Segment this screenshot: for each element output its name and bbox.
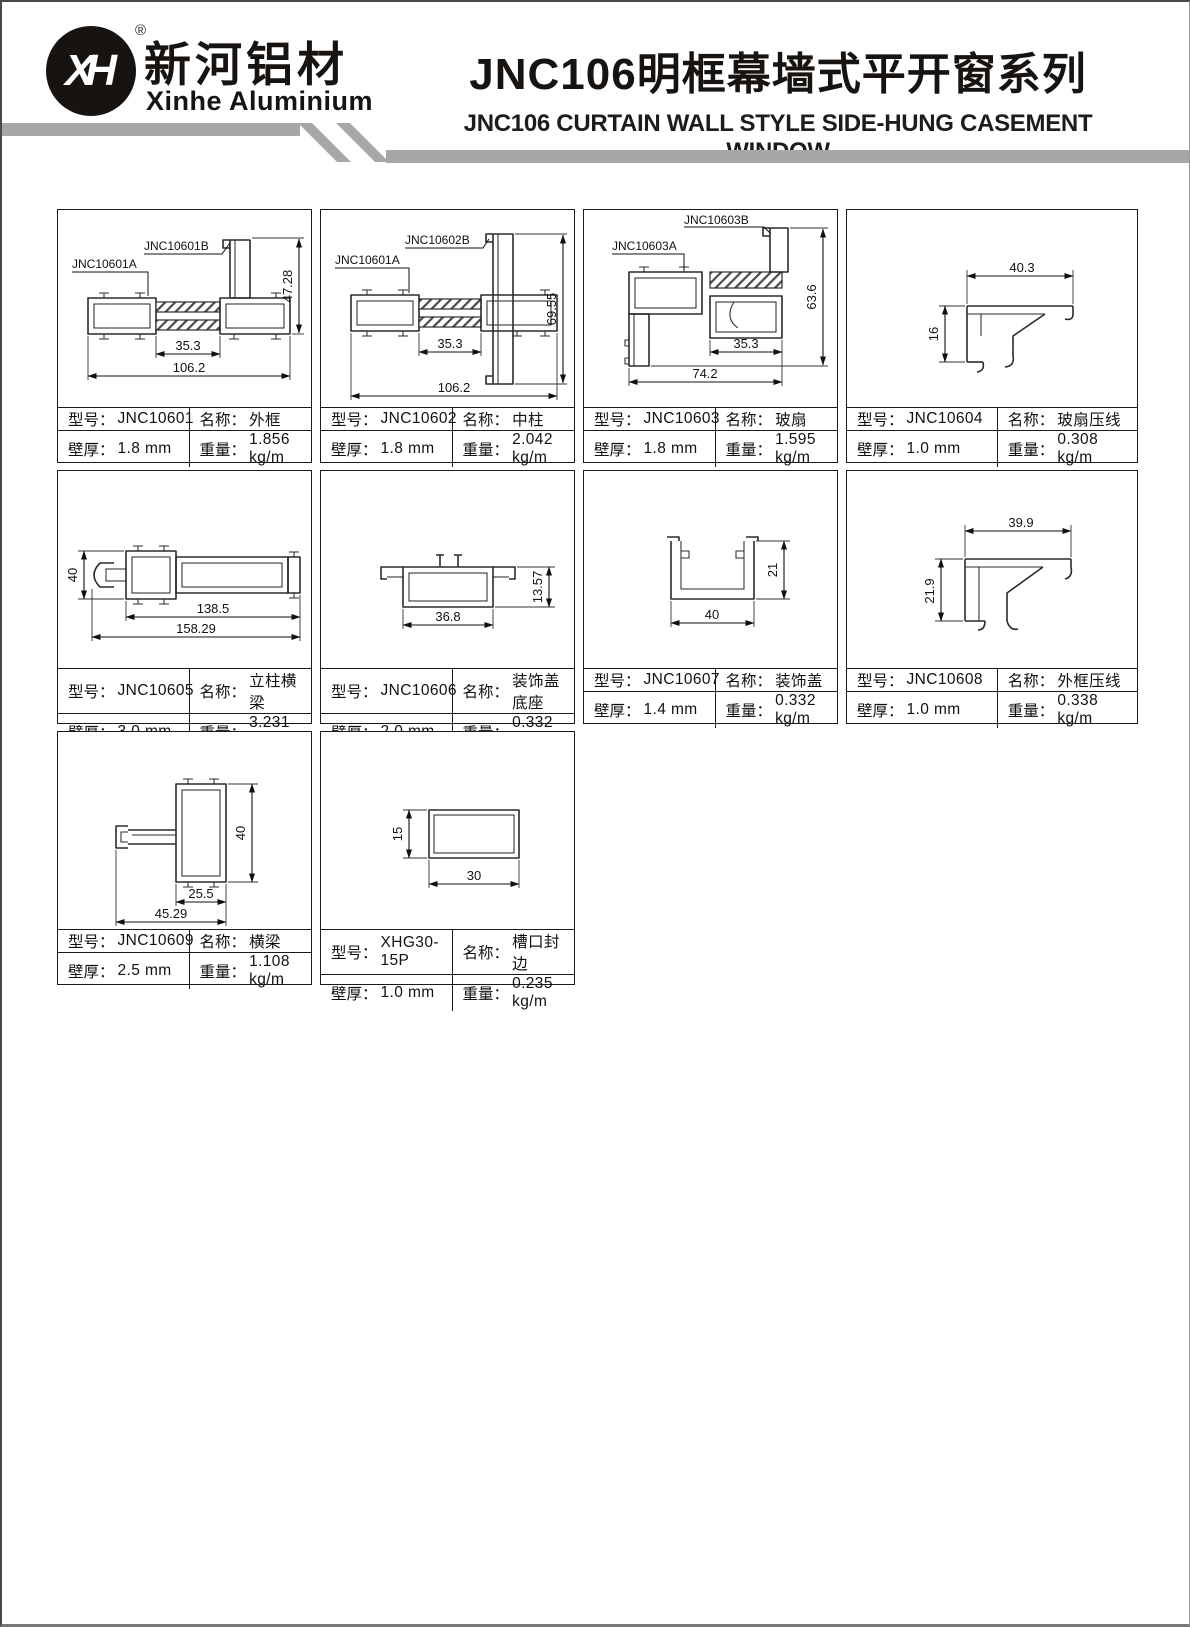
model-label: 型号：	[594, 669, 641, 691]
name-value: 装饰盖	[772, 669, 823, 691]
weight-label: 重量：	[463, 982, 510, 1004]
name-value: 装饰盖底座	[509, 669, 574, 713]
profile-card-jnc10605: 40 138.5 158.29 型号：JNC10605 名称：立柱横梁 壁厚：3…	[57, 470, 312, 724]
model-value: JNC10603	[641, 410, 720, 428]
dim-width: 36.8	[435, 609, 460, 624]
thickness-label: 壁厚：	[68, 438, 115, 460]
weight-label: 重量：	[1008, 438, 1055, 460]
spec-table: 型号：XHG30-15P 名称：槽口封边 壁厚：1.0 mm 重量：0.235 …	[321, 929, 574, 1011]
dim-width: 39.9	[1008, 515, 1033, 530]
thickness-label: 壁厚：	[594, 438, 641, 460]
thickness-label: 壁厚：	[331, 438, 378, 460]
weight-label: 重量：	[726, 438, 773, 460]
thickness-label: 壁厚：	[857, 699, 904, 721]
model-label: 型号：	[331, 941, 378, 963]
dim-height: 16	[926, 327, 941, 341]
name-label: 名称：	[200, 680, 247, 702]
weight-value: 0.338 kg/m	[1054, 692, 1137, 728]
thickness-value: 1.8 mm	[641, 440, 698, 458]
cad-section-jnc10605: 40 138.5 158.29	[58, 471, 310, 668]
profile-grid: 47.28 35.3 106.2 JNC10601A JNC10601B 型号：…	[57, 209, 1138, 985]
dim-overall: 45.29	[155, 906, 188, 921]
cad-section-jnc10603: 63.6 35.3 74.2 JNC10603A JNC10603B	[584, 210, 836, 407]
thickness-value: 1.0 mm	[904, 440, 961, 458]
cad-section-jnc10606: 36.8 13.57	[321, 471, 573, 668]
model-label: 型号：	[857, 669, 904, 691]
thickness-label: 壁厚：	[68, 960, 115, 982]
thickness-value: 1.8 mm	[378, 440, 435, 458]
company-name-cn: 新河铝材	[144, 26, 348, 95]
weight-value: 1.856 kg/m	[246, 431, 311, 467]
profile-drawing: 40 25.5 45.29	[58, 732, 311, 929]
header-titles: JNC106明框幕墙式平开窗系列 JNC106 CURTAIN WALL STY…	[422, 2, 1134, 166]
name-value: 外框压线	[1054, 669, 1121, 691]
profile-card-jnc10606: 36.8 13.57 型号：JNC10606 名称：装饰盖底座 壁厚：2.0 m…	[320, 470, 575, 724]
dim-overall: 158.29	[176, 621, 216, 636]
model-value: JNC10609	[115, 932, 194, 950]
name-label: 名称：	[463, 408, 510, 430]
profile-card-jnc10601: 47.28 35.3 106.2 JNC10601A JNC10601B 型号：…	[57, 209, 312, 463]
model-label: 型号：	[68, 930, 115, 952]
profile-drawing: 40 21	[584, 471, 837, 668]
spec-table: 型号：JNC10609 名称：横梁 壁厚：2.5 mm 重量：1.108 kg/…	[58, 929, 311, 989]
weight-value: 0.235 kg/m	[509, 975, 574, 1011]
profile-drawing: 69.55 35.3 106.2 JNC10601A JNC10602B	[321, 210, 574, 407]
callout-b: JNC10601B	[144, 239, 209, 253]
cad-section-jnc10602: 69.55 35.3 106.2 JNC10601A JNC10602B	[321, 210, 573, 407]
cad-section-jnc10607: 40 21	[584, 471, 836, 668]
company-name-en: Xinhe Aluminium	[146, 86, 373, 117]
cad-section-xhg30-15p: 15 30	[321, 732, 573, 929]
thickness-value: 2.5 mm	[115, 962, 172, 980]
dim-height: 15	[390, 827, 405, 841]
dim-height: 21	[765, 563, 780, 577]
thickness-label: 壁厚：	[857, 438, 904, 460]
thickness-value: 1.0 mm	[378, 984, 435, 1002]
model-value: JNC10608	[904, 671, 983, 689]
company-logo-icon: XH	[46, 26, 136, 116]
name-value: 玻扇	[772, 408, 807, 430]
dim-height: 63.6	[804, 284, 819, 309]
weight-label: 重量：	[200, 960, 247, 982]
spec-table: 型号：JNC10602 名称：中柱 壁厚：1.8 mm 重量：2.042 kg/…	[321, 407, 574, 467]
model-label: 型号：	[594, 408, 641, 430]
dim-center: 35.3	[437, 336, 462, 351]
decorative-band-left	[2, 123, 300, 136]
dim-height: 40	[65, 568, 80, 582]
dim-height: 13.57	[530, 571, 545, 604]
profile-card-jnc10608: 39.9 21.9 型号：JNC10608 名称：外框压线 壁厚：1.0 mm …	[846, 470, 1138, 724]
thickness-value: 1.4 mm	[641, 701, 698, 719]
spec-table: 型号：JNC10604 名称：玻扇压线 壁厚：1.0 mm 重量：0.308 k…	[847, 407, 1137, 467]
dim-height: 47.28	[280, 270, 295, 303]
dim-overall: 106.2	[438, 380, 471, 395]
dim-inner: 138.5	[197, 601, 230, 616]
thickness-label: 壁厚：	[594, 699, 641, 721]
dim-height: 69.55	[544, 293, 559, 326]
cad-section-jnc10601: 47.28 35.3 106.2 JNC10601A JNC10601B	[58, 210, 310, 407]
profile-drawing: 36.8 13.57	[321, 471, 574, 668]
profile-drawing: 39.9 21.9	[847, 471, 1137, 668]
profile-drawing: 40.3 16	[847, 210, 1137, 407]
weight-label: 重量：	[1008, 699, 1055, 721]
model-label: 型号：	[857, 408, 904, 430]
name-value: 外框	[246, 408, 281, 430]
callout-b: JNC10603B	[684, 213, 749, 227]
model-label: 型号：	[331, 408, 378, 430]
profile-card-jnc10602: 69.55 35.3 106.2 JNC10601A JNC10602B 型号：…	[320, 209, 575, 463]
profile-card-jnc10609: 40 25.5 45.29 型号：JNC10609 名称：横梁 壁厚：2.5 m…	[57, 731, 312, 985]
name-label: 名称：	[200, 930, 247, 952]
callout-a: JNC10601A	[72, 257, 137, 271]
model-value: JNC10606	[378, 682, 457, 700]
callout-a: JNC10603A	[612, 239, 677, 253]
thickness-label: 壁厚：	[331, 982, 378, 1004]
model-value: JNC10601	[115, 410, 194, 428]
thickness-value: 1.8 mm	[115, 440, 172, 458]
dim-overall: 106.2	[173, 360, 206, 375]
profile-card-jnc10604: 40.3 16 型号：JNC10604 名称：玻扇压线 壁厚：1.0 mm 重量…	[846, 209, 1138, 463]
name-label: 名称：	[463, 941, 510, 963]
name-label: 名称：	[1008, 408, 1055, 430]
weight-label: 重量：	[200, 438, 247, 460]
spec-table: 型号：JNC10607 名称：装饰盖 壁厚：1.4 mm 重量：0.332 kg…	[584, 668, 837, 728]
weight-value: 2.042 kg/m	[509, 431, 574, 467]
model-label: 型号：	[68, 408, 115, 430]
name-value: 中柱	[509, 408, 544, 430]
callout-b: JNC10602B	[405, 233, 470, 247]
decorative-band-right	[386, 150, 1190, 163]
profile-card-jnc10607: 40 21 型号：JNC10607 名称：装饰盖 壁厚：1.4 mm 重量：0.…	[583, 470, 838, 724]
dim-height: 40	[233, 826, 248, 840]
name-value: 玻扇压线	[1054, 408, 1121, 430]
model-value: JNC10602	[378, 410, 457, 428]
spec-table: 型号：JNC10608 名称：外框压线 壁厚：1.0 mm 重量：0.338 k…	[847, 668, 1137, 728]
cad-section-jnc10604: 40.3 16	[847, 210, 1136, 407]
name-label: 名称：	[463, 680, 510, 702]
series-title-cn: JNC106明框幕墙式平开窗系列	[422, 38, 1134, 102]
catalog-page: XH ® 新河铝材 Xinhe Aluminium JNC106明框幕墙式平开窗…	[0, 0, 1190, 1627]
profile-card-xhg30-15p: 15 30 型号：XHG30-15P 名称：槽口封边 壁厚：1.0 mm 重量：…	[320, 731, 575, 985]
name-label: 名称：	[726, 669, 773, 691]
dim-width: 30	[467, 868, 481, 883]
name-label: 名称：	[1008, 669, 1055, 691]
cad-section-jnc10608: 39.9 21.9	[847, 471, 1136, 668]
model-value: JNC10605	[115, 682, 194, 700]
cad-section-jnc10609: 40 25.5 45.29	[58, 732, 310, 929]
name-value: 横梁	[246, 930, 281, 952]
callout-a: JNC10601A	[335, 253, 400, 267]
name-label: 名称：	[726, 408, 773, 430]
weight-label: 重量：	[463, 438, 510, 460]
name-value: 槽口封边	[509, 930, 574, 974]
dim-overall: 74.2	[692, 366, 717, 381]
weight-value: 1.595 kg/m	[772, 431, 837, 467]
model-label: 型号：	[331, 680, 378, 702]
spec-table: 型号：JNC10603 名称：玻扇 壁厚：1.8 mm 重量：1.595 kg/…	[584, 407, 837, 467]
dim-width: 40.3	[1009, 260, 1034, 275]
name-label: 名称：	[200, 408, 247, 430]
profile-drawing: 15 30	[321, 732, 574, 929]
dim-center: 35.3	[175, 338, 200, 353]
model-value: JNC10607	[641, 671, 720, 689]
model-value: JNC10604	[904, 410, 983, 428]
profile-drawing: 63.6 35.3 74.2 JNC10603A JNC10603B	[584, 210, 837, 407]
weight-value: 0.308 kg/m	[1054, 431, 1137, 467]
thickness-value: 1.0 mm	[904, 701, 961, 719]
weight-label: 重量：	[726, 699, 773, 721]
dim-inner: 25.5	[188, 886, 213, 901]
weight-value: 0.332 kg/m	[772, 692, 837, 728]
weight-value: 1.108 kg/m	[246, 953, 311, 989]
model-label: 型号：	[68, 680, 115, 702]
profile-drawing: 47.28 35.3 106.2 JNC10601A JNC10601B	[58, 210, 311, 407]
dim-width: 40	[705, 607, 719, 622]
name-value: 立柱横梁	[246, 669, 311, 713]
profile-drawing: 40 138.5 158.29	[58, 471, 311, 668]
dim-height: 21.9	[922, 578, 937, 603]
model-value: XHG30-15P	[378, 934, 452, 970]
dim-center: 35.3	[733, 336, 758, 351]
profile-card-jnc10603: 63.6 35.3 74.2 JNC10603A JNC10603B 型号：JN…	[583, 209, 838, 463]
spec-table: 型号：JNC10601 名称：外框 壁厚：1.8 mm 重量：1.856 kg/…	[58, 407, 311, 467]
